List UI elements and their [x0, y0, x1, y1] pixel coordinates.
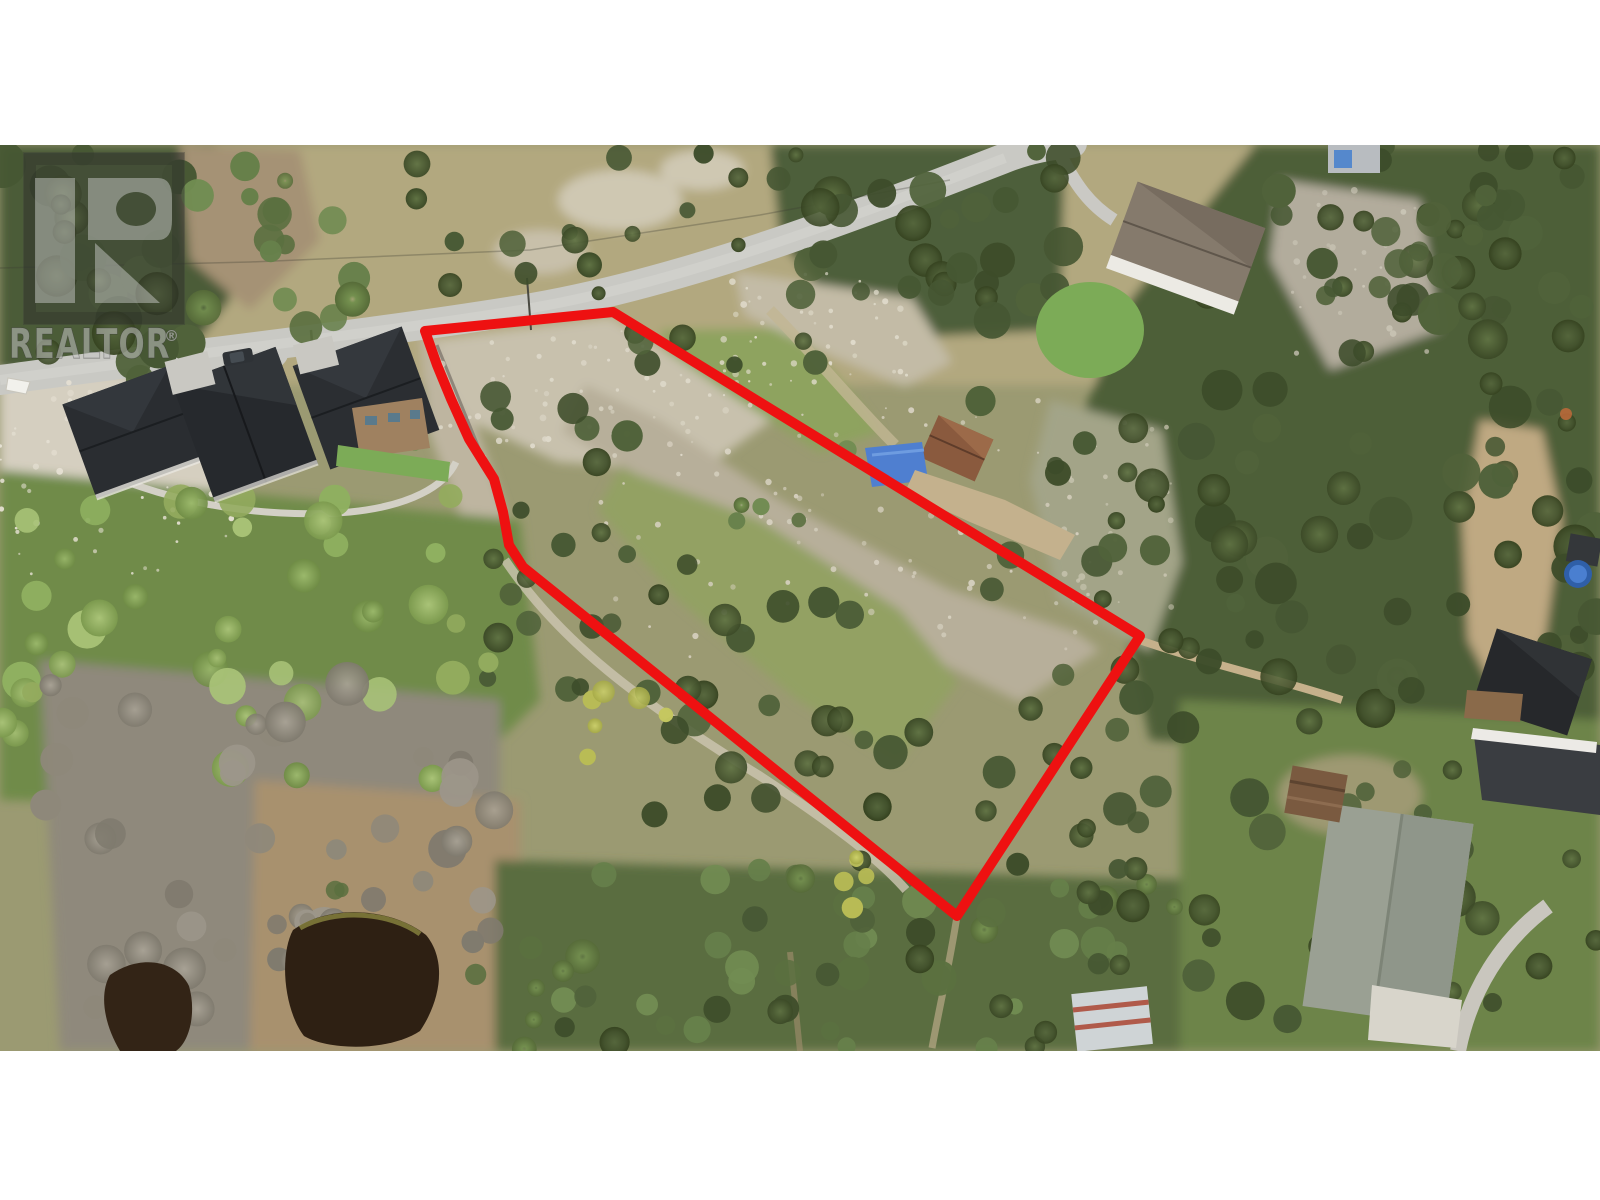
aerial-photo: REALTOR ®	[0, 0, 1600, 1200]
shed-top-right	[1328, 145, 1380, 173]
watermark-text: REALTOR	[9, 320, 171, 369]
pool-water	[1569, 565, 1587, 583]
pond-small	[104, 962, 192, 1051]
window	[410, 410, 420, 419]
equipment	[1560, 408, 1572, 420]
wood-shed	[1284, 766, 1347, 823]
watermark: REALTOR ®	[9, 152, 185, 368]
east-house-wall	[1464, 690, 1523, 722]
registered-trademark-symbol: ®	[164, 327, 179, 345]
window	[365, 416, 377, 425]
neighbor-lawn	[1036, 282, 1144, 378]
real-estate-listing-photo: REALTOR ®	[0, 0, 1600, 1200]
window	[388, 413, 400, 422]
bottom-shed	[1071, 986, 1153, 1052]
